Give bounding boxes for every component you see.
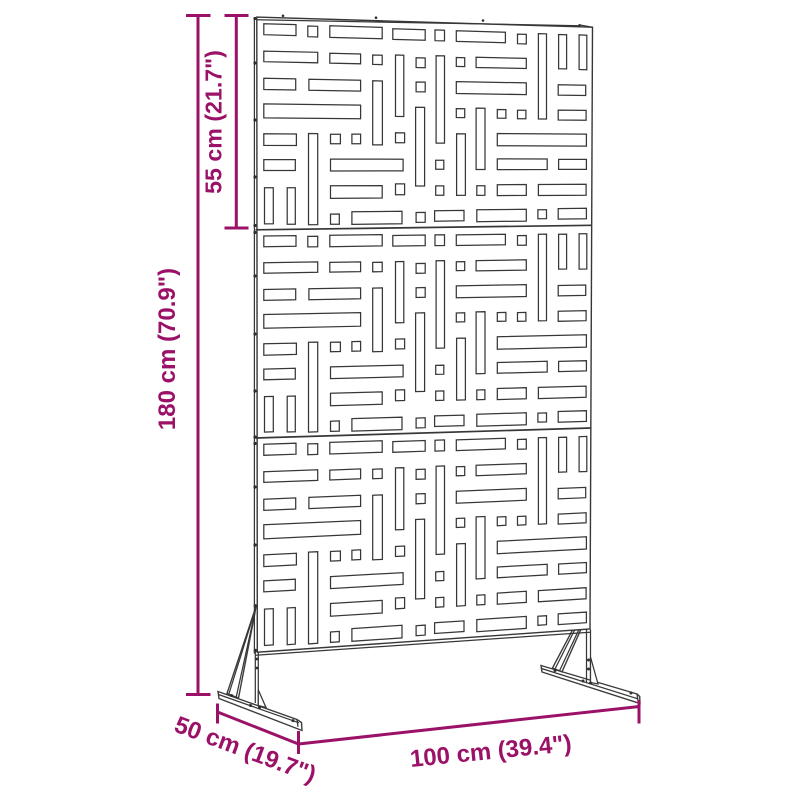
svg-text:55 cm (21.7"): 55 cm (21.7") [201,50,227,194]
svg-text:180 cm (70.9"): 180 cm (70.9") [154,268,181,430]
